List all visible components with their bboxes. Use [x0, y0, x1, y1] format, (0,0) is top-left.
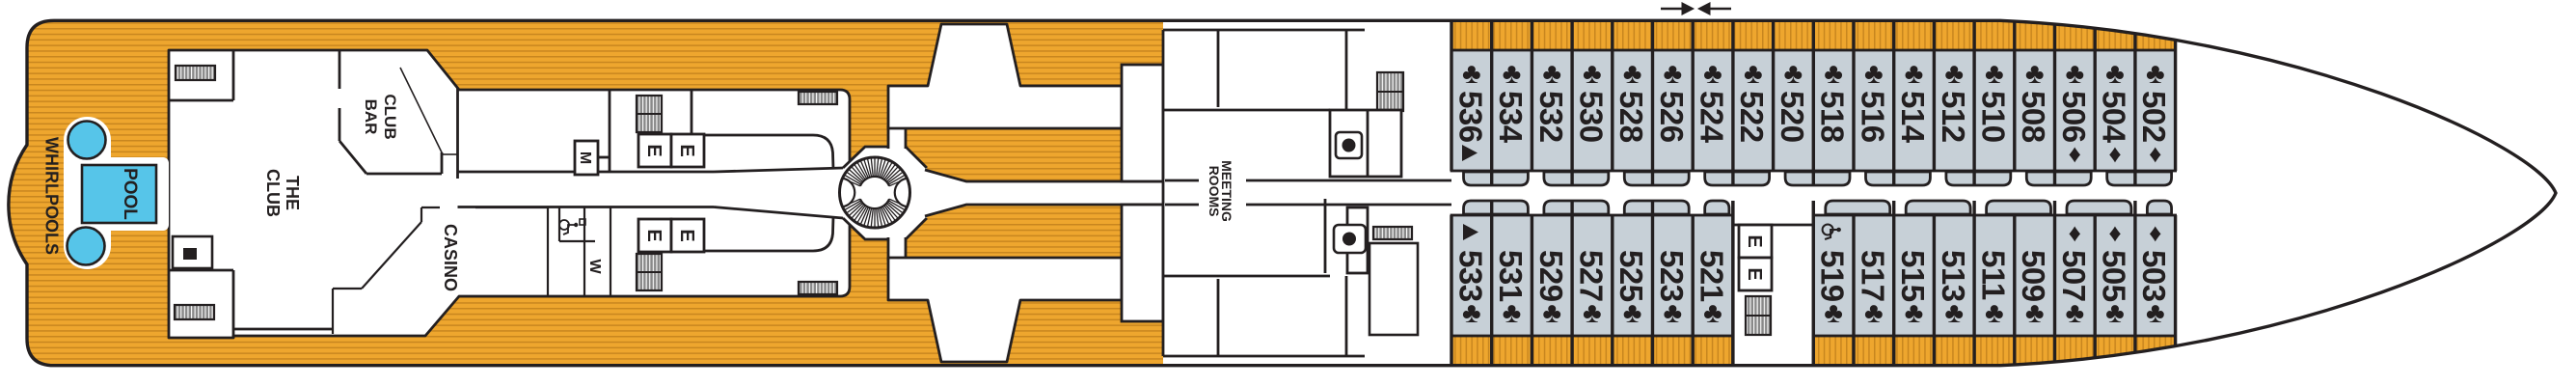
- svg-text:515: 515: [1895, 250, 1931, 302]
- svg-text:505: 505: [2097, 250, 2132, 302]
- svg-text:522: 522: [1734, 91, 1770, 143]
- svg-text:♣: ♣: [1623, 297, 1642, 329]
- svg-text:507: 507: [2056, 250, 2092, 302]
- svg-text:510: 510: [1975, 91, 2011, 143]
- svg-text:E: E: [676, 229, 697, 241]
- svg-text:♣: ♣: [1462, 58, 1481, 90]
- svg-text:529: 529: [1533, 250, 1569, 302]
- svg-text:♣: ♣: [1985, 297, 2004, 329]
- svg-text:♣: ♣: [2146, 58, 2165, 90]
- svg-text:♦: ♦: [2069, 218, 2081, 247]
- svg-text:♣: ♣: [1944, 58, 1964, 90]
- svg-text:519: 519: [1815, 250, 1851, 302]
- svg-text:M: M: [577, 152, 593, 164]
- svg-text:♣: ♣: [1663, 297, 1682, 329]
- svg-text:♦: ♦: [2149, 218, 2161, 247]
- svg-text:532: 532: [1533, 91, 1569, 143]
- svg-text:530: 530: [1573, 91, 1609, 143]
- svg-text:♣: ♣: [2146, 297, 2165, 329]
- svg-text:514: 514: [1895, 91, 1931, 144]
- svg-text:♦: ♦: [2108, 139, 2121, 168]
- svg-text:♣: ♣: [1824, 58, 1843, 90]
- svg-text:516: 516: [1855, 91, 1890, 143]
- svg-text:517: 517: [1855, 250, 1890, 302]
- svg-text:♣: ♣: [1905, 297, 1924, 329]
- svg-text:♣: ♣: [2065, 58, 2084, 90]
- svg-text:518: 518: [1815, 91, 1851, 143]
- svg-text:525: 525: [1613, 250, 1649, 302]
- svg-text:♣: ♣: [1985, 58, 2004, 90]
- svg-text:E: E: [643, 229, 664, 241]
- svg-text:506: 506: [2056, 91, 2092, 143]
- svg-text:533: 533: [1452, 250, 1488, 302]
- svg-text:♣: ♣: [2105, 297, 2125, 329]
- svg-text:♣: ♣: [1824, 297, 1843, 329]
- svg-text:503: 503: [2136, 250, 2172, 302]
- svg-text:♣: ♣: [1583, 297, 1602, 329]
- svg-text:♣: ♣: [2025, 297, 2045, 329]
- svg-text:509: 509: [2016, 250, 2051, 302]
- svg-text:♣: ♣: [1503, 297, 1522, 329]
- svg-text:♣: ♣: [1744, 58, 1763, 90]
- svg-text:W: W: [586, 259, 603, 274]
- svg-text:527: 527: [1573, 250, 1609, 302]
- svg-text:511: 511: [1975, 250, 2011, 300]
- svg-text:521: 521: [1695, 250, 1730, 302]
- svg-text:531: 531: [1493, 250, 1529, 302]
- svg-text:MEETINGROOMS: MEETINGROOMS: [1207, 160, 1234, 222]
- svg-text:♣: ♣: [1703, 297, 1722, 329]
- svg-text:♣: ♣: [1462, 297, 1481, 329]
- svg-text:508: 508: [2016, 91, 2051, 143]
- svg-text:502: 502: [2136, 91, 2172, 143]
- svg-text:534: 534: [1493, 91, 1529, 144]
- svg-text:♣: ♣: [1864, 297, 1884, 329]
- svg-text:♦: ♦: [2069, 139, 2081, 168]
- svg-text:♣: ♣: [1503, 58, 1522, 90]
- svg-text:E: E: [676, 144, 697, 156]
- svg-text:♣: ♣: [1905, 58, 1924, 90]
- svg-text:CLUBBAR: CLUBBAR: [362, 94, 399, 139]
- svg-text:♣: ♣: [1542, 297, 1561, 329]
- svg-text:WHIRLPOOLS: WHIRLPOOLS: [42, 137, 62, 255]
- svg-text:♣: ♣: [2065, 297, 2084, 329]
- svg-text:E: E: [1744, 267, 1765, 280]
- svg-text:♣: ♣: [2025, 58, 2045, 90]
- svg-text:E: E: [1744, 234, 1765, 247]
- svg-text:♣: ♣: [2105, 58, 2125, 90]
- svg-text:504: 504: [2097, 91, 2132, 144]
- svg-text:POOL: POOL: [120, 168, 140, 220]
- svg-text:524: 524: [1695, 91, 1730, 144]
- svg-text:♣: ♣: [1703, 58, 1722, 90]
- svg-text:♣: ♣: [1583, 58, 1602, 90]
- svg-text:♣: ♣: [1784, 58, 1803, 90]
- svg-text:536: 536: [1452, 91, 1488, 143]
- svg-text:♣: ♣: [1663, 58, 1682, 90]
- svg-text:526: 526: [1654, 91, 1690, 143]
- svg-text:E: E: [643, 144, 664, 156]
- svg-text:THECLUB: THECLUB: [263, 169, 302, 217]
- svg-text:528: 528: [1613, 91, 1649, 143]
- svg-text:♦: ♦: [2108, 218, 2121, 247]
- svg-text:CASINO: CASINO: [441, 224, 460, 291]
- svg-text:512: 512: [1936, 91, 1971, 143]
- svg-text:♣: ♣: [1623, 58, 1642, 90]
- svg-text:520: 520: [1775, 91, 1810, 143]
- svg-text:♣: ♣: [1864, 58, 1884, 90]
- svg-text:523: 523: [1654, 250, 1690, 302]
- svg-text:♣: ♣: [1944, 297, 1964, 329]
- svg-text:♣: ♣: [1542, 58, 1561, 90]
- svg-text:513: 513: [1936, 250, 1971, 302]
- svg-text:♦: ♦: [2149, 139, 2161, 168]
